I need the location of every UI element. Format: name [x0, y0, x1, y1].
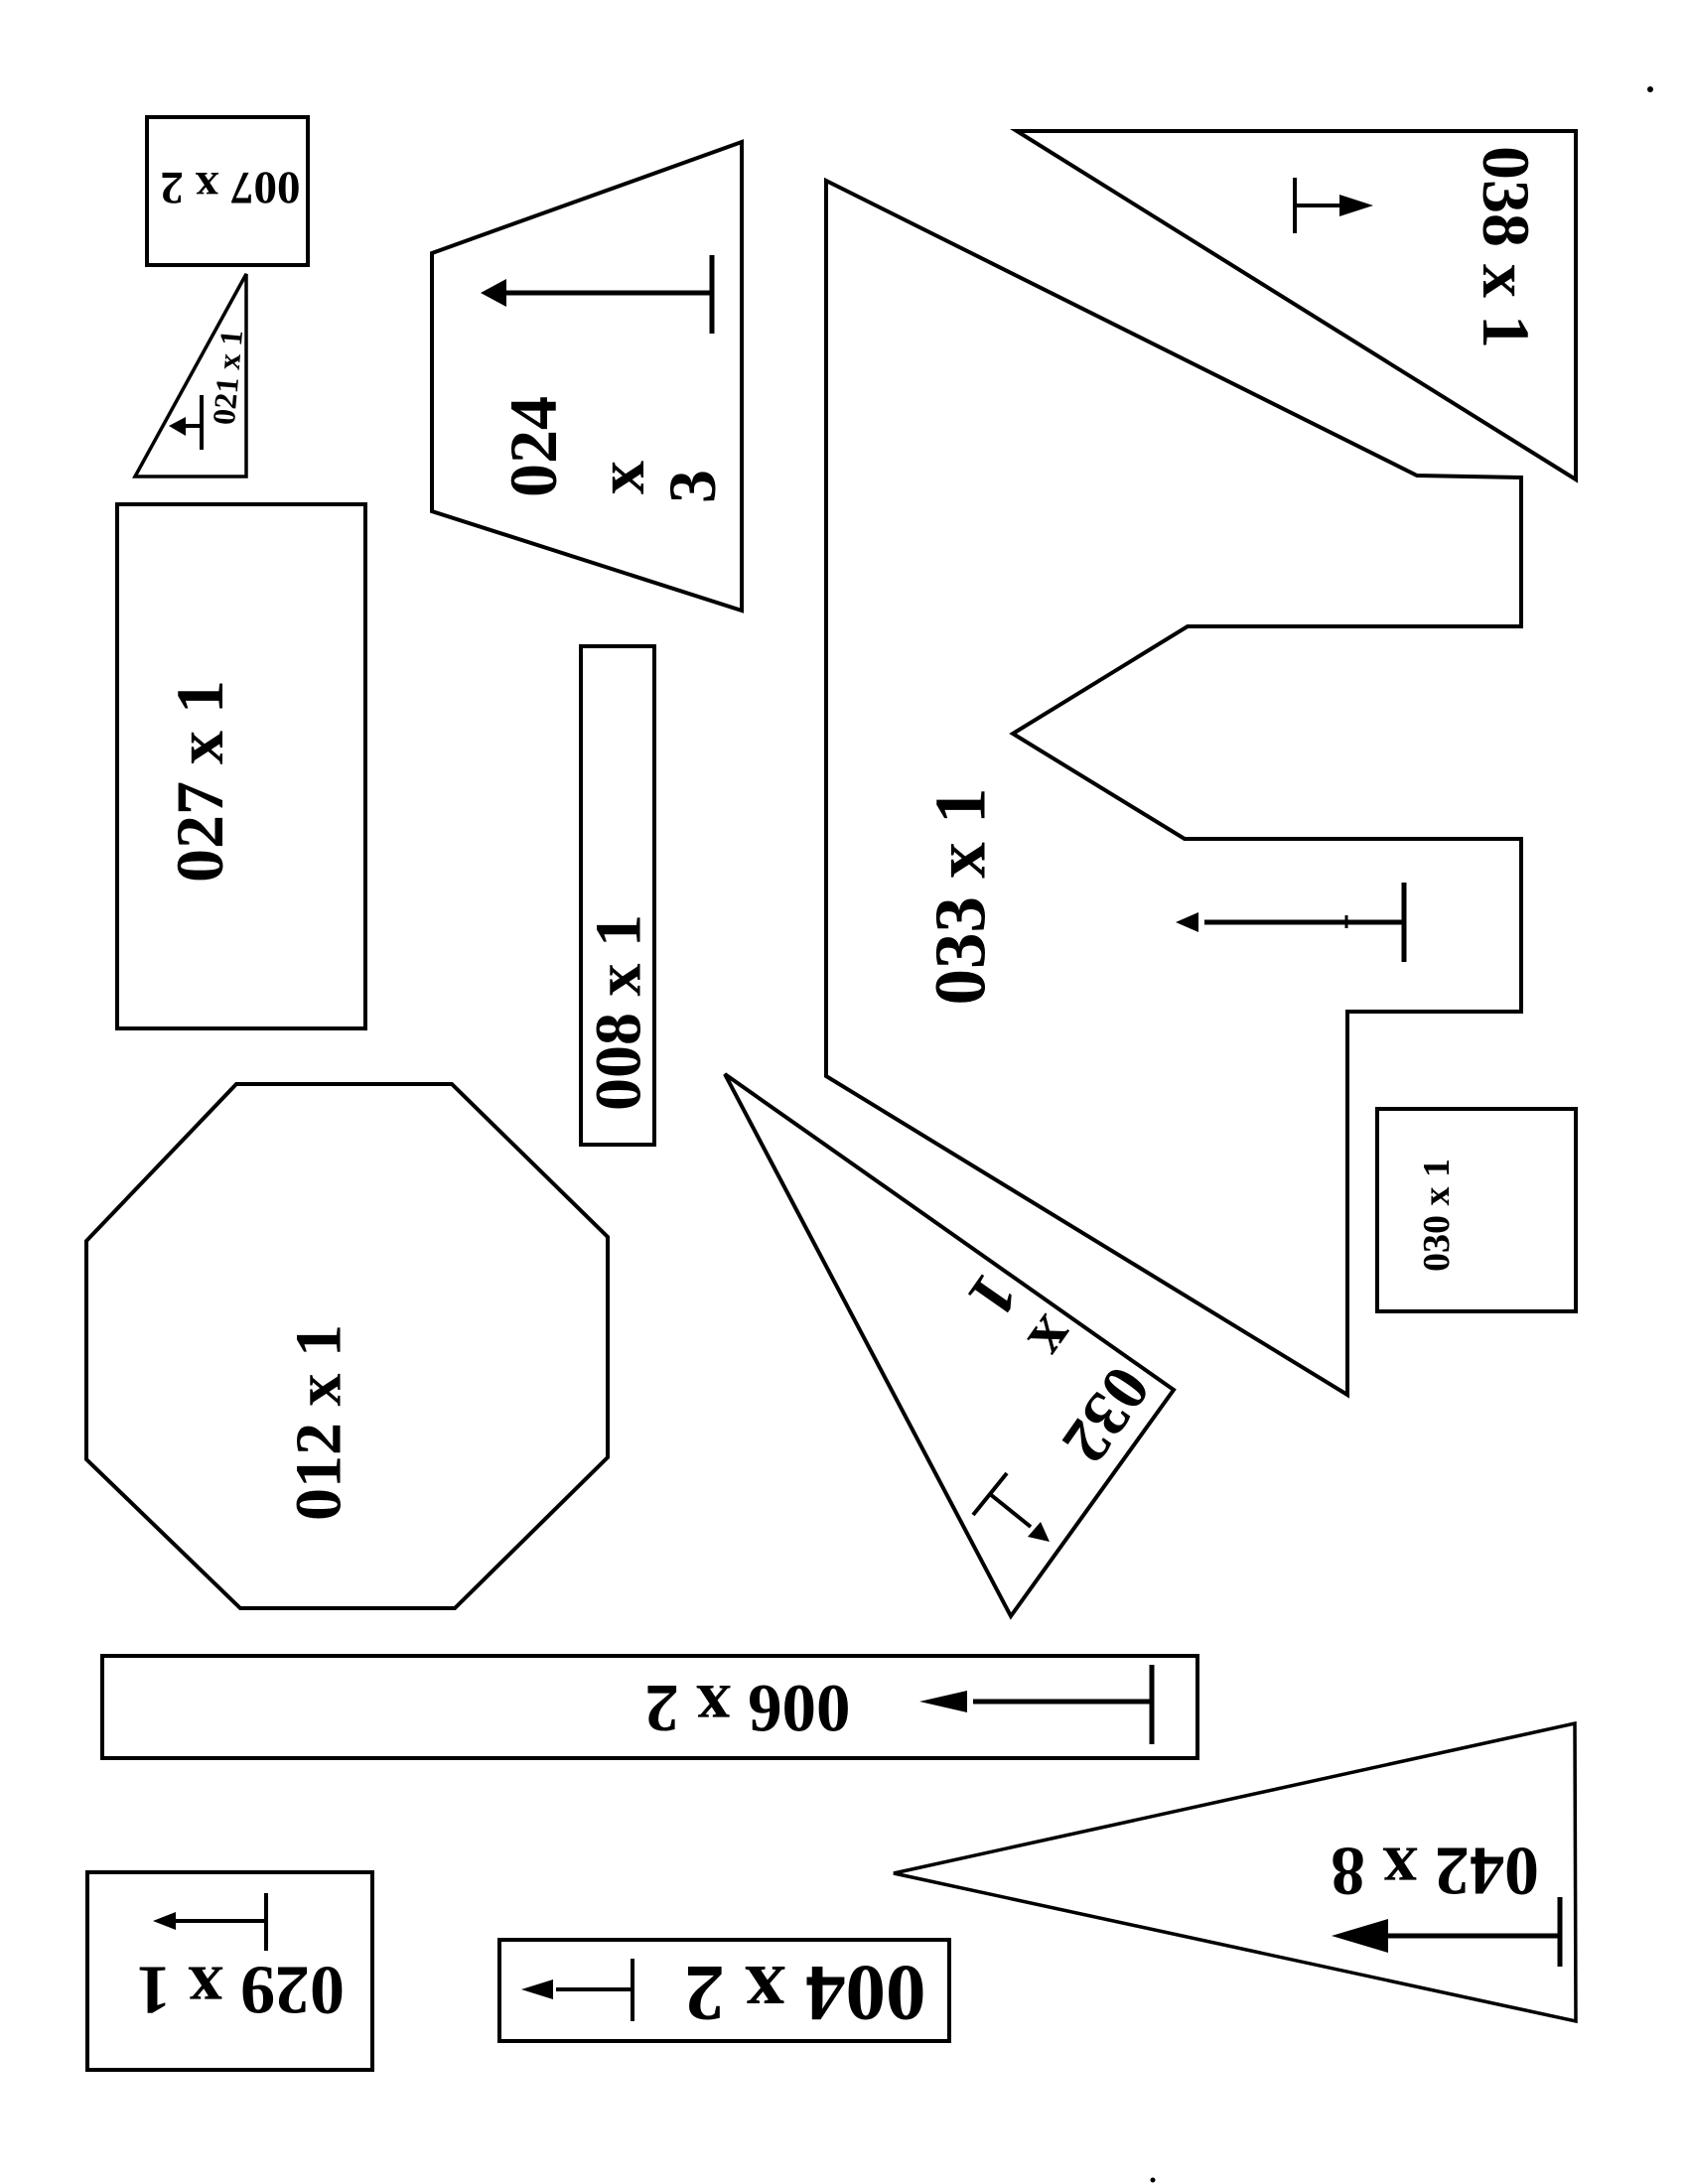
svg-text:004 x 2: 004 x 2 — [685, 1949, 926, 2038]
svg-text:x: x — [583, 461, 658, 494]
svg-text:007 x 2: 007 x 2 — [161, 162, 301, 213]
svg-text:008 x 1: 008 x 1 — [583, 914, 655, 1111]
svg-text:030 x 1: 030 x 1 — [1416, 1159, 1458, 1272]
svg-text:038 x 1: 038 x 1 — [1469, 146, 1544, 348]
svg-text:027 x 1: 027 x 1 — [162, 680, 237, 883]
svg-text:029 x 1: 029 x 1 — [136, 1952, 345, 2028]
svg-text:012 x 1: 012 x 1 — [283, 1324, 355, 1521]
svg-text:033 x 1: 033 x 1 — [920, 788, 1001, 1006]
svg-text:042 x 8: 042 x 8 — [1331, 1833, 1539, 1909]
svg-text:006 x 2: 006 x 2 — [645, 1671, 851, 1746]
svg-text:024: 024 — [495, 396, 571, 497]
svg-text:3: 3 — [654, 470, 730, 503]
